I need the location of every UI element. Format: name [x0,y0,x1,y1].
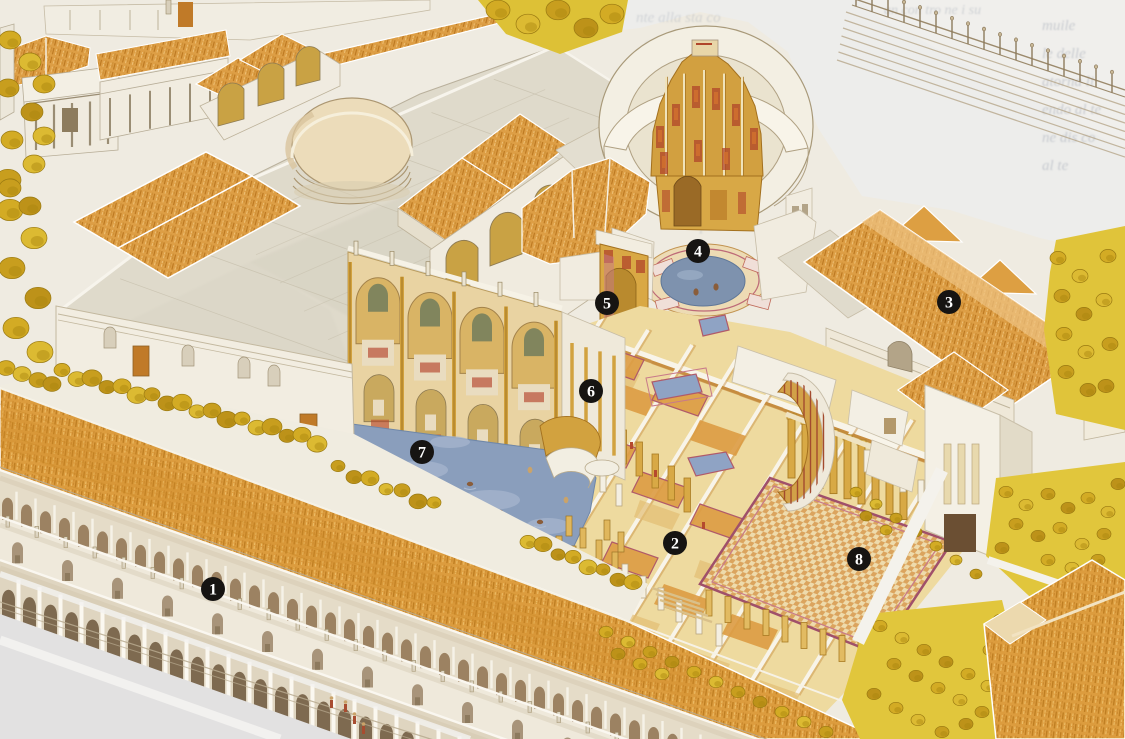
svg-text:muile: muile [1042,18,1076,34]
svg-text:al te: al te [1042,158,1069,174]
svg-text:3: 3 [945,295,953,312]
svg-text:1: 1 [209,582,217,599]
svg-text:7: 7 [418,445,426,462]
svg-text:6: 6 [587,384,595,401]
svg-text:nte alla sta co: nte alla sta co [636,10,721,26]
svg-text:an con tro ne i su: an con tro ne i su [884,3,981,18]
svg-text:5: 5 [603,296,611,313]
svg-text:4: 4 [694,244,702,261]
svg-text:8: 8 [855,552,863,569]
svg-text:2: 2 [671,536,679,553]
